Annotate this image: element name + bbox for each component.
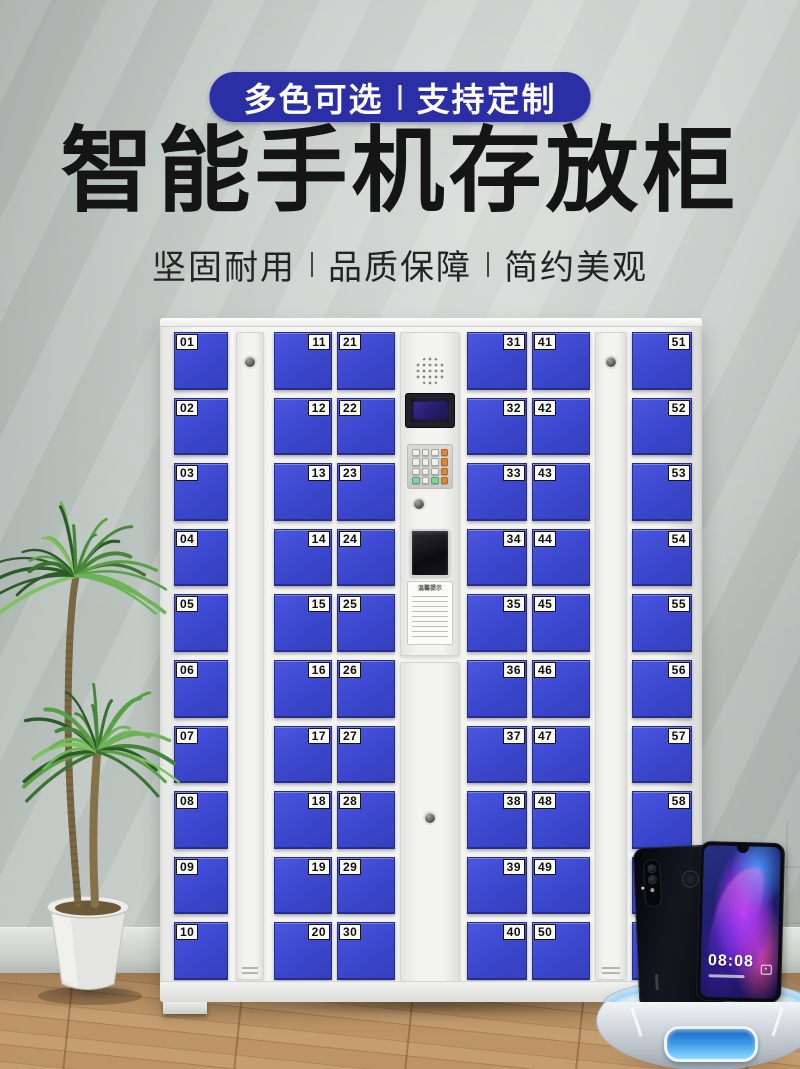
- door-number-label: 12: [308, 400, 330, 416]
- locker-door-cell: 33: [467, 463, 527, 521]
- base-seam: [771, 1007, 783, 1036]
- locker-door-cell: 11: [274, 332, 332, 390]
- locker-door-cell: 35: [467, 594, 527, 652]
- door-number-label: 28: [339, 793, 361, 809]
- keypad-key: [412, 468, 420, 475]
- door-number-label: 30: [339, 924, 361, 940]
- plant-leaf: [76, 575, 149, 602]
- camera-flash-icon: [650, 888, 654, 892]
- locker-door-cell: 34: [467, 529, 527, 587]
- door-number-label: 45: [534, 596, 556, 612]
- door-number-label: 55: [668, 596, 690, 612]
- locker-door-cell: 55: [632, 594, 692, 652]
- base-seam: [630, 1007, 642, 1036]
- keypad-key: [441, 477, 449, 484]
- locker-door-cell: 42: [532, 398, 590, 456]
- door-number-label: 15: [308, 596, 330, 612]
- locker-door-cell: 56: [632, 660, 692, 718]
- door-number-label: 35: [503, 596, 525, 612]
- door-number-label: 50: [534, 924, 556, 940]
- locker-door-cell: 39: [467, 857, 527, 915]
- vent-slot: [602, 967, 620, 969]
- subtitle-divider: [311, 252, 313, 277]
- door-number-label: 44: [534, 531, 556, 547]
- badge-text-right: 支持定制: [417, 73, 557, 121]
- door-number-label: 40: [503, 924, 525, 940]
- locker-door-cell: 58: [632, 791, 692, 849]
- phone-date-text: [709, 974, 745, 978]
- door-number-label: 27: [339, 728, 361, 744]
- keypad-key: [422, 458, 430, 465]
- locker-door-cell: 30: [337, 922, 395, 980]
- door-number-label: 49: [534, 859, 556, 875]
- door-number-label: 24: [339, 531, 361, 547]
- lock-icon: [425, 813, 435, 823]
- door-number-label: 18: [308, 793, 330, 809]
- locker-cabinet: 0102030405060708091011121314151617181920…: [160, 318, 702, 1002]
- notice-text-lines: [412, 596, 448, 641]
- vent-slot: [602, 972, 620, 974]
- keypad-key: [412, 449, 420, 456]
- door-number-label: 23: [339, 465, 361, 481]
- locker-door-cell: 01: [174, 332, 228, 390]
- keypad-key: [422, 449, 430, 456]
- main-title: 智能手机存放柜: [0, 116, 800, 228]
- door-number-label: 52: [668, 400, 690, 416]
- door-number-label: 31: [503, 334, 525, 350]
- subtitle-item: 品质保障: [328, 240, 472, 289]
- notice-label: 温馨提示: [407, 581, 453, 645]
- door-number-label: 20: [308, 924, 330, 940]
- door-number-label: 13: [308, 465, 330, 481]
- locker-door-cell: 46: [532, 660, 590, 718]
- locker-column: 21222324252627282930: [337, 332, 395, 980]
- locker-door-cell: 37: [467, 726, 527, 784]
- subtitle: 坚固耐用 品质保障 简约美观: [0, 240, 800, 289]
- door-number-label: 56: [668, 662, 690, 678]
- door-number-label: 41: [534, 334, 556, 350]
- locker-door-cell: 45: [532, 594, 590, 652]
- pot-soil: [55, 901, 121, 916]
- locker-door-cell: 32: [467, 398, 527, 456]
- base-blue-light: [664, 1026, 758, 1062]
- door-number-label: 29: [339, 859, 361, 875]
- door-number-label: 51: [668, 334, 690, 350]
- keypad-key: [422, 477, 430, 484]
- badge-divider: [399, 85, 402, 110]
- locker-door-cell: 48: [532, 791, 590, 849]
- door-number-label: 39: [503, 859, 525, 875]
- locker-door-cell: 20: [274, 922, 332, 980]
- locker-door-cell: 54: [632, 529, 692, 587]
- locker-door-cell: 51: [632, 332, 692, 390]
- door-number-label: 14: [308, 531, 330, 547]
- locker-door-cell: 28: [337, 791, 395, 849]
- locker-door-cell: 41: [532, 332, 590, 390]
- door-number-label: 02: [176, 400, 198, 416]
- locker-door-cell: 29: [337, 857, 395, 915]
- locker-door-cell: 18: [274, 791, 332, 849]
- door-number-label: 36: [503, 662, 525, 678]
- door-number-label: 58: [668, 793, 690, 809]
- notice-title: 温馨提示: [412, 586, 448, 593]
- locker-door-cell: 15: [274, 594, 332, 652]
- door-number-label: 34: [503, 531, 525, 547]
- potted-plant: [0, 430, 225, 1040]
- keypad: [407, 444, 453, 489]
- lock-icon: [245, 357, 255, 367]
- door-number-label: 32: [503, 400, 525, 416]
- locker-door-cell: 31: [467, 332, 527, 390]
- locker-door-cell: 49: [532, 857, 590, 915]
- rear-camera-icon: [643, 859, 662, 908]
- door-number-label: 46: [534, 662, 556, 678]
- plant-leaf: [0, 576, 76, 623]
- door-number-label: 19: [308, 859, 330, 875]
- keypad-key: [431, 449, 439, 456]
- locker-door-cell: 23: [337, 463, 395, 521]
- locker-door-cell: 24: [337, 529, 395, 587]
- locker-column: 31323334353637383940: [467, 332, 527, 980]
- door-number-label: 38: [503, 793, 525, 809]
- locker-door-cell: 36: [467, 660, 527, 718]
- fingerprint-sensor-icon: [682, 870, 700, 888]
- keypad-key: [441, 468, 449, 475]
- badge-text-left: 多色可选: [244, 73, 384, 121]
- product-banner: 多色可选 支持定制 智能手机存放柜 坚固耐用 品质保障 简约美观 0102030…: [0, 0, 800, 1069]
- camera-lens-icon: [647, 864, 656, 873]
- door-number-label: 26: [339, 662, 361, 678]
- locker-door-cell: 47: [532, 726, 590, 784]
- control-lower-door: [400, 662, 460, 982]
- door-number-label: 17: [308, 728, 330, 744]
- brand-mark: [655, 974, 659, 990]
- control-panel: 温馨提示: [400, 332, 460, 656]
- door-number-label: 47: [534, 728, 556, 744]
- control-screen: [405, 393, 455, 428]
- camera-shortcut-icon: [761, 965, 772, 975]
- plant-trunk: [93, 755, 97, 904]
- door-number-label: 33: [503, 465, 525, 481]
- locker-door-cell: 25: [337, 594, 395, 652]
- locker-door-cell: 44: [532, 529, 590, 587]
- locker-column: 11121314151617181920: [274, 332, 332, 980]
- locker-door-cell: 43: [532, 463, 590, 521]
- plant-leaf: [98, 752, 158, 796]
- vent-slot: [242, 972, 258, 974]
- phone-front-view: 08:08: [696, 841, 785, 1003]
- locker-door-cell: 19: [274, 857, 332, 915]
- locker-door-cell: 12: [274, 398, 332, 456]
- locker-door-cell: 57: [632, 726, 692, 784]
- locker-door-cell: 40: [467, 922, 527, 980]
- locker-column: 41424344454647484950: [532, 332, 590, 980]
- lock-icon: [414, 499, 424, 509]
- locker-door-cell: 21: [337, 332, 395, 390]
- phone-clock: 08:08: [708, 952, 754, 971]
- locker-door-cell: 53: [632, 463, 692, 521]
- control-panel-column: 温馨提示: [400, 332, 460, 980]
- keypad-key: [431, 458, 439, 465]
- side-panel: [595, 332, 627, 980]
- keypad-key: [431, 468, 439, 475]
- locker-door-cell: 26: [337, 660, 395, 718]
- keypad-key: [412, 477, 420, 484]
- camera-notch: [736, 846, 748, 853]
- keypad-key: [431, 477, 439, 484]
- door-number-label: 54: [668, 531, 690, 547]
- door-number-label: 57: [668, 728, 690, 744]
- locker-door-cell: 16: [274, 660, 332, 718]
- locker-door-cell: 13: [274, 463, 332, 521]
- subtitle-item: 坚固耐用: [152, 240, 296, 289]
- locker-door-cell: 38: [467, 791, 527, 849]
- cabinet-top-edge: [160, 318, 702, 327]
- keypad-key: [422, 468, 430, 475]
- lock-icon: [606, 357, 616, 367]
- keypad-key: [412, 458, 420, 465]
- locker-door-cell: 50: [532, 922, 590, 980]
- door-number-label: 53: [668, 465, 690, 481]
- locker-door-cell: 14: [274, 529, 332, 587]
- subtitle-item: 简约美观: [504, 240, 648, 289]
- vent-slot: [242, 967, 258, 969]
- screen-lcd: [414, 402, 447, 419]
- locker-door-cell: 17: [274, 726, 332, 784]
- door-number-label: 25: [339, 596, 361, 612]
- camera-lens-icon: [648, 875, 657, 884]
- phone-screen: 08:08: [700, 845, 781, 999]
- side-panel: [236, 332, 264, 980]
- door-number-label: 22: [339, 400, 361, 416]
- locker-door-cell: 27: [337, 726, 395, 784]
- door-number-label: 43: [534, 465, 556, 481]
- locker-door-cell: 52: [632, 398, 692, 456]
- subtitle-divider: [487, 252, 489, 277]
- door-number-label: 21: [339, 334, 361, 350]
- promo-badge: 多色可选 支持定制: [210, 72, 591, 122]
- door-number-label: 11: [308, 334, 330, 350]
- locker-door-cell: 22: [337, 398, 395, 456]
- keypad-key: [441, 458, 449, 465]
- door-number-label: 01: [176, 334, 198, 350]
- speaker-grille-icon: [415, 357, 445, 385]
- door-number-label: 42: [534, 400, 556, 416]
- door-number-label: 37: [503, 728, 525, 744]
- card-scanner-window: [410, 529, 450, 577]
- plant-leaves: [0, 503, 179, 801]
- door-number-label: 48: [534, 793, 556, 809]
- door-number-label: 16: [308, 662, 330, 678]
- keypad-key: [441, 449, 449, 456]
